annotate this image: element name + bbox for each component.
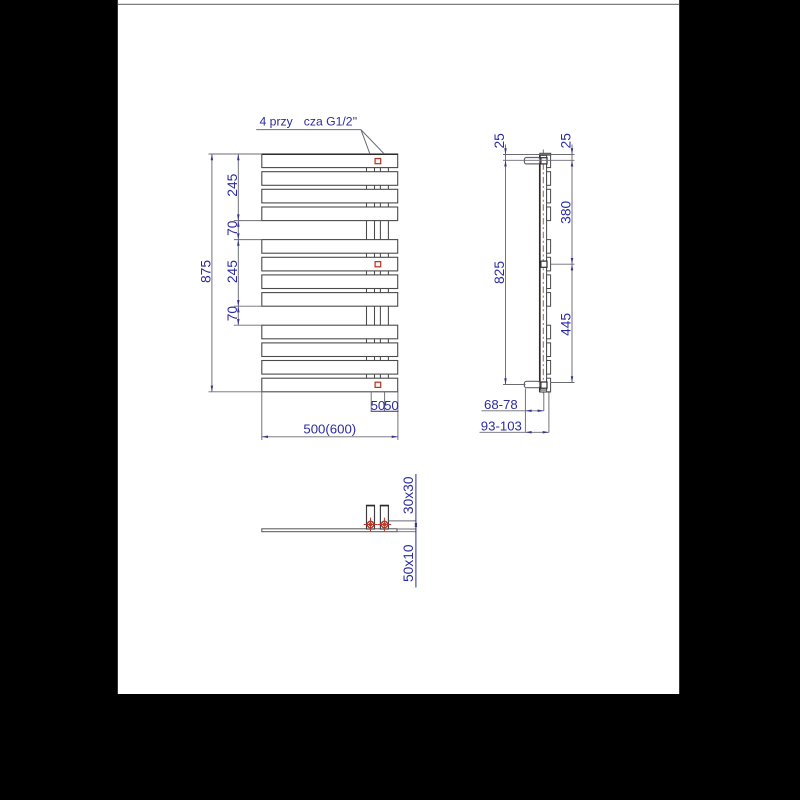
svg-text:68-78: 68-78 (484, 397, 518, 412)
svg-text:93-103: 93-103 (481, 418, 522, 433)
svg-text:825: 825 (492, 261, 507, 284)
svg-text:30x30: 30x30 (401, 476, 416, 514)
svg-text:245: 245 (225, 173, 240, 196)
svg-text:50x10: 50x10 (401, 544, 416, 582)
svg-text:500(600): 500(600) (303, 421, 356, 436)
svg-text:cza G1/2'': cza G1/2'' (304, 115, 357, 129)
svg-text:875: 875 (198, 260, 213, 283)
svg-text:25: 25 (492, 133, 507, 149)
svg-text:70: 70 (225, 220, 240, 236)
svg-text:245: 245 (225, 260, 240, 283)
svg-text:25: 25 (559, 133, 574, 149)
svg-text:445: 445 (559, 313, 574, 336)
svg-text:4 przy: 4 przy (260, 115, 294, 129)
svg-text:380: 380 (559, 200, 574, 223)
svg-text:70: 70 (225, 306, 240, 322)
